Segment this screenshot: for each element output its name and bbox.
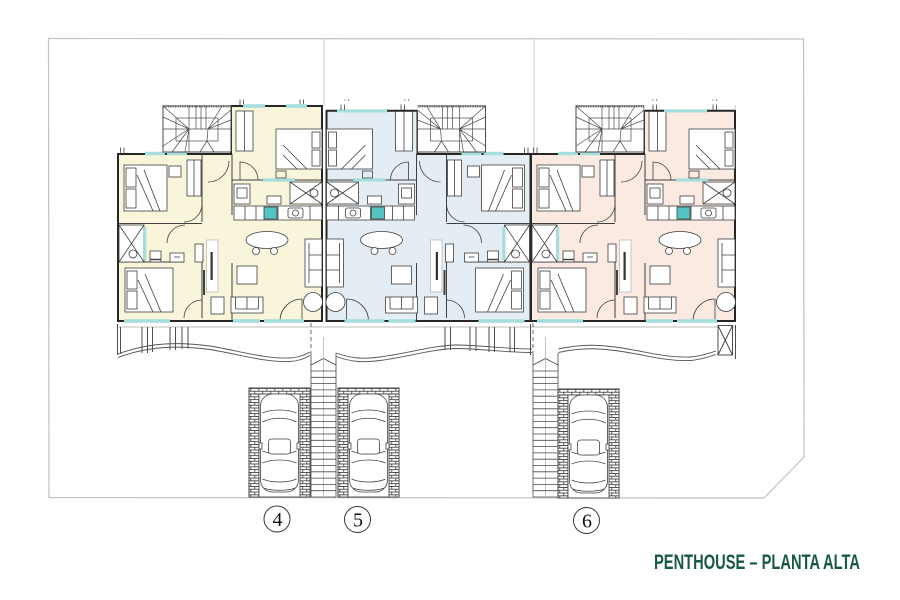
svg-text:5: 5 [353,510,363,532]
svg-text:6: 6 [582,511,592,533]
svg-text:4: 4 [273,509,283,531]
svg-text:PENTHOUSE – PLANTA ALTA: PENTHOUSE – PLANTA ALTA [654,551,860,574]
